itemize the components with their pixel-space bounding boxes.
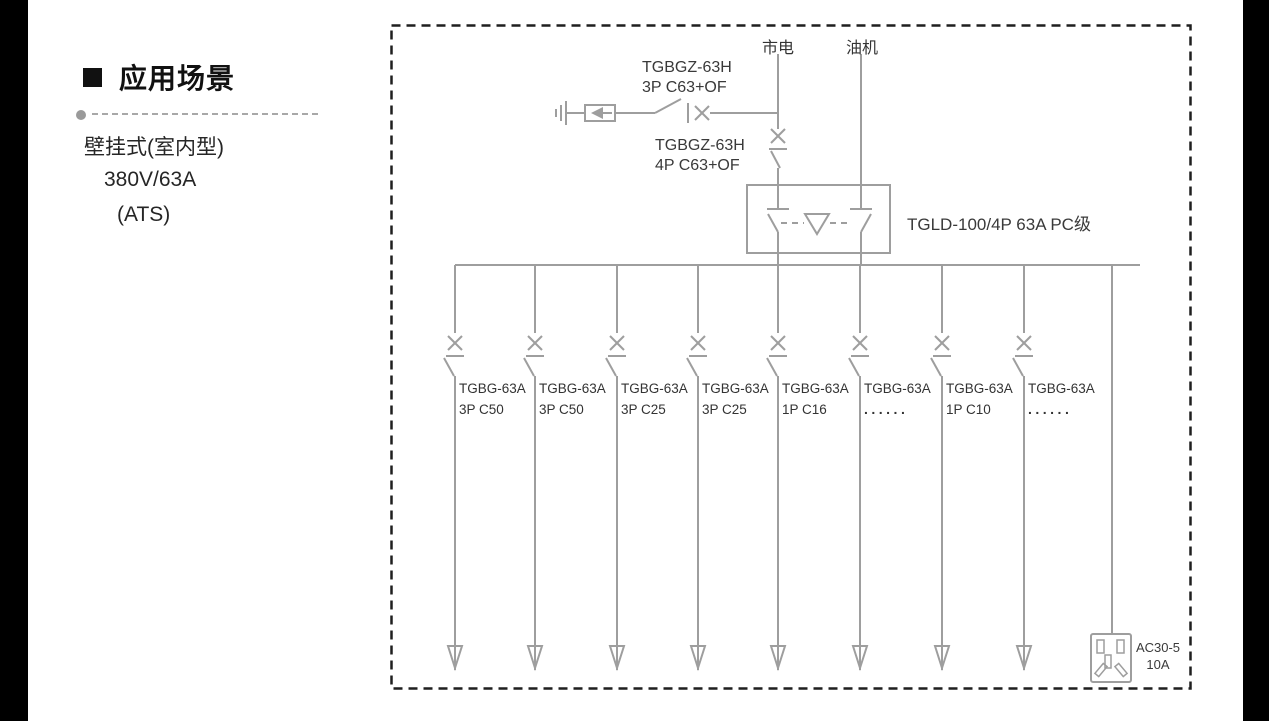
- feeder-1: [444, 265, 464, 670]
- ats-label: TGLD-100/4P 63A PC级: [907, 210, 1091, 235]
- spd-branch: [556, 99, 778, 125]
- main-breaker-model: TGBGZ-63H: [655, 136, 745, 156]
- spd-breaker-label: TGBGZ-63H 3P C63+OF: [642, 58, 732, 98]
- socket-model: AC30-5: [1131, 639, 1185, 656]
- feature-type: (ATS): [117, 203, 170, 227]
- diagram-linework: [390, 24, 1192, 690]
- feeder-6-label: TGBG-63A ......: [864, 378, 931, 420]
- socket-label: AC30-5 10A: [1131, 639, 1185, 673]
- socket-feeder: [1091, 265, 1131, 682]
- feeder-1-label: TGBG-63A 3P C50: [459, 378, 526, 420]
- dashed-divider: [92, 113, 318, 115]
- feeder-8: [1013, 265, 1033, 670]
- mains-source-label: 市电: [762, 34, 794, 58]
- spd-breaker-spec: 3P C63+OF: [642, 78, 732, 98]
- section-title: 应用场景: [119, 57, 235, 97]
- feature-mounting: 壁挂式(室内型): [84, 131, 224, 161]
- main-breaker-label: TGBGZ-63H 4P C63+OF: [655, 136, 745, 176]
- feeder-7-label: TGBG-63A 1P C10: [946, 378, 1013, 420]
- socket-rating: 10A: [1131, 656, 1185, 673]
- feeder-5-label: TGBG-63A 1P C16: [782, 378, 849, 420]
- feeder-7: [931, 265, 951, 670]
- section-bullet-icon: [83, 68, 102, 87]
- feeder-4: [687, 265, 707, 670]
- feeder-4-label: TGBG-63A 3P C25: [702, 378, 769, 420]
- ats-interlock-icon: [805, 214, 829, 234]
- feeder-6: [849, 265, 869, 670]
- single-line-diagram: 市电 油机 TGBGZ-63H 3P C63+OF TGBGZ-63H 4P C…: [390, 24, 1192, 690]
- feeder-5: [767, 265, 787, 670]
- feeder-2-label: TGBG-63A 3P C50: [539, 378, 606, 420]
- generator-source-label: 油机: [846, 34, 878, 58]
- spd-breaker-model: TGBGZ-63H: [642, 58, 732, 78]
- ground-icon: [556, 101, 566, 125]
- spd-breaker-icon: [655, 99, 709, 123]
- feeder-3: [606, 265, 626, 670]
- divider-dot-icon: [76, 110, 86, 120]
- feature-rating: 380V/63A: [104, 168, 196, 192]
- feeder-2: [524, 265, 544, 670]
- feeder-3-label: TGBG-63A 3P C25: [621, 378, 688, 420]
- sidebar: 应用场景 壁挂式(室内型) 380V/63A (ATS): [0, 0, 380, 721]
- diagram-border: [392, 26, 1191, 689]
- right-edge-bar: [1243, 0, 1269, 721]
- main-breaker-spec: 4P C63+OF: [655, 156, 745, 176]
- surge-arrester-icon: [585, 105, 615, 121]
- ats-switch: [747, 168, 890, 265]
- feeder-8-label: TGBG-63A ......: [1028, 378, 1095, 420]
- socket-icon: [1091, 634, 1131, 682]
- section-header: 应用场景: [83, 58, 235, 96]
